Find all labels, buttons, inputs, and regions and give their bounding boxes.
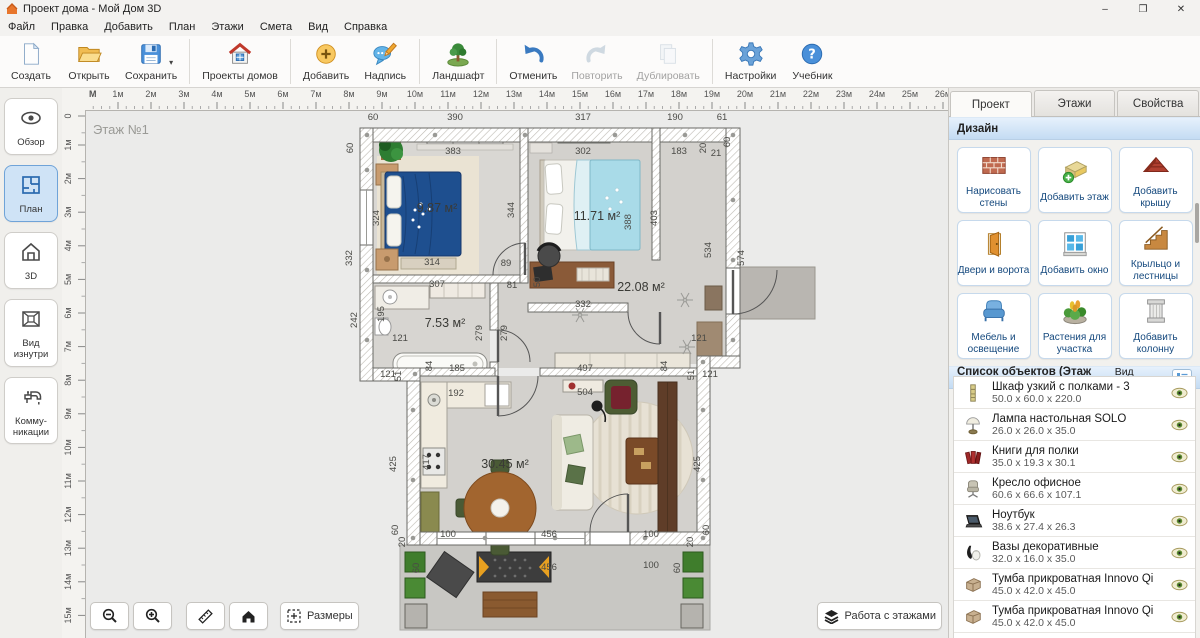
toolbar-button-settings[interactable]: Настройки	[718, 36, 784, 87]
h-ruler-tick-label: 17м	[638, 89, 654, 99]
v-ruler-tick-label: 11м	[63, 473, 73, 489]
toolbar-button-label: Создать	[11, 70, 51, 82]
dimension-label: 425	[692, 456, 703, 472]
object-list-item[interactable]: Книги для полки35.0 x 19.3 x 30.1	[954, 441, 1195, 473]
window-icon	[1060, 230, 1090, 263]
toolbar-button-label: Настройки	[725, 70, 777, 82]
dimension-label: 60	[345, 143, 356, 154]
dropdown-arrow-icon[interactable]: ▾	[169, 58, 173, 67]
dimension-label: 100	[440, 529, 456, 540]
visibility-eye-icon[interactable]	[1169, 419, 1189, 431]
dimension-label: 84	[659, 361, 670, 372]
add-plus-icon	[313, 39, 339, 69]
settings-gear-icon	[738, 39, 764, 69]
zoom-out-button[interactable]	[90, 602, 129, 630]
toolbar-separator	[419, 39, 420, 84]
h-ruler-tick-label: 24м	[869, 89, 885, 99]
toolbar-button-add[interactable]: Добавить	[296, 36, 356, 87]
design-button-add-roof[interactable]: Добавить крышу	[1119, 147, 1193, 213]
object-item-dimensions: 50.0 x 60.0 x 220.0	[992, 393, 1169, 405]
dimension-label: 417	[421, 454, 432, 470]
room-area-label: 30.45 м²	[481, 457, 529, 471]
object-list[interactable]: Шкаф узкий с полками - 350.0 x 60.0 x 22…	[953, 376, 1196, 638]
new-document-icon	[18, 39, 44, 69]
dimension-label: 100	[643, 560, 659, 571]
dimension-label: 302	[575, 146, 591, 157]
object-item-text: Вазы декоративные32.0 x 16.0 x 35.0	[992, 541, 1169, 565]
h-ruler-tick-label: 19м	[704, 89, 720, 99]
v-ruler-tick-label: 6м	[63, 307, 73, 318]
object-item-name: Книги для полки	[992, 445, 1169, 457]
v-ruler-tick-label: 0	[63, 113, 73, 118]
measure-button[interactable]	[186, 602, 225, 630]
design-button-label: Мебель и освещение	[958, 332, 1030, 354]
visibility-eye-icon[interactable]	[1169, 387, 1189, 399]
panel-scrollbar[interactable]	[1195, 203, 1199, 243]
help-circle-icon: ?	[799, 39, 825, 69]
h-ruler-tick-label: 2м	[145, 89, 156, 99]
dimensions-button-label: Размеры	[307, 610, 353, 622]
dimension-label: 317	[575, 112, 591, 123]
toolbar-button-save[interactable]: ▾Сохранить	[118, 36, 184, 87]
menu-item-0[interactable]: Файл	[0, 20, 43, 34]
redo-arrow-icon	[584, 39, 610, 69]
dimension-label: 324	[371, 210, 382, 226]
dimension-label: 332	[575, 299, 591, 310]
toolbar-separator	[712, 39, 713, 84]
tab-project[interactable]: Проект	[950, 91, 1032, 117]
object-list-item[interactable]: Картины на холсте	[954, 633, 1195, 638]
vases-icon	[960, 542, 986, 564]
sofa[interactable]	[552, 415, 593, 510]
label-bubble-icon	[371, 39, 399, 69]
object-item-text: Шкаф узкий с полками - 350.0 x 60.0 x 22…	[992, 381, 1169, 405]
toolbar-button-label: Открыть	[68, 70, 109, 82]
h-ruler-tick-label: 12м	[473, 89, 489, 99]
h-ruler-tick-label: 9м	[376, 89, 387, 99]
dimension-label: 314	[424, 257, 440, 268]
dimension-label: 574	[736, 250, 747, 266]
h-ruler-tick-label: 18м	[671, 89, 687, 99]
design-button-doors-gates[interactable]: Двери и ворота	[957, 220, 1031, 286]
dimension-label: 497	[577, 363, 593, 374]
object-item-text: Книги для полки35.0 x 19.3 x 30.1	[992, 445, 1169, 469]
design-button-label: Растения для участка	[1039, 332, 1111, 354]
panel-tabs: ПроектЭтажиСвойства	[949, 88, 1200, 117]
dimension-label: 307	[429, 279, 445, 290]
dimension-label: 534	[703, 242, 714, 258]
column-icon	[1141, 297, 1171, 330]
zoom-in-button[interactable]	[133, 602, 172, 630]
design-header-label: Дизайн	[957, 123, 998, 135]
terrace-table[interactable]	[483, 592, 537, 617]
work-with-floors-label: Работа с этажами	[845, 610, 937, 622]
entrance-porch	[740, 267, 815, 319]
dimension-label: 456	[541, 529, 557, 540]
toolbar-separator	[496, 39, 497, 84]
h-ruler-tick-label: 3м	[178, 89, 189, 99]
zoom-out-icon	[102, 608, 118, 624]
books-icon	[960, 446, 986, 468]
object-item-dimensions: 38.6 x 27.4 x 26.3	[992, 521, 1169, 533]
toolbar-separator	[290, 39, 291, 84]
menu-item-4[interactable]: Этажи	[203, 20, 251, 34]
eye-icon	[18, 106, 44, 135]
menu-item-1[interactable]: Правка	[43, 20, 96, 34]
room-area-label: 11.71 м²	[574, 209, 621, 223]
floor-plan[interactable]: Этаж №1603903171906138330218320216060332…	[85, 110, 948, 638]
dimensions-grid-icon	[286, 608, 302, 624]
visibility-eye-icon[interactable]	[1169, 515, 1189, 527]
duplicate-pages-icon	[655, 39, 681, 69]
dimension-label: 100	[643, 529, 659, 540]
dimension-label: 61	[717, 112, 728, 123]
toolbar-button-label: Отменить	[509, 70, 557, 82]
object-list-item[interactable]: Вазы декоративные32.0 x 16.0 x 35.0	[954, 537, 1195, 569]
object-item-text: Ноутбук38.6 x 27.4 x 26.3	[992, 509, 1169, 533]
save-floppy-icon: ▾	[138, 39, 164, 69]
visibility-eye-icon[interactable]	[1169, 483, 1189, 495]
dimension-label: 403	[649, 210, 660, 226]
v-ruler-tick-label: 15м	[63, 607, 73, 623]
object-item-dimensions: 35.0 x 19.3 x 30.1	[992, 457, 1169, 469]
dimension-label: 183	[671, 146, 687, 157]
dimension-label: 192	[448, 388, 464, 399]
h-ruler-tick-label: 14м	[539, 89, 555, 99]
dimension-label: 456	[541, 562, 557, 573]
dimension-label: 51	[686, 370, 697, 381]
toolbar-button-label: Ландшафт	[432, 70, 484, 82]
dimensions-button[interactable]: Размеры	[280, 602, 359, 630]
sidebar-item-3d[interactable]: 3D	[4, 232, 58, 289]
dimension-label: 84	[424, 361, 435, 372]
sidebar-item-label: Комму-никации	[7, 417, 55, 439]
faucet-icon	[18, 385, 44, 414]
h-ruler-tick-label: 23м	[836, 89, 852, 99]
toolbar-button-undo[interactable]: Отменить	[502, 36, 564, 87]
visibility-eye-icon[interactable]	[1169, 547, 1189, 559]
design-button-add-floor[interactable]: Добавить этаж	[1038, 147, 1112, 213]
object-item-dimensions: 60.6 x 66.6 x 107.1	[992, 489, 1169, 501]
toolbar-button-label: Повторить	[571, 70, 622, 82]
nightstand-icon	[960, 574, 986, 596]
visibility-eye-icon[interactable]	[1169, 611, 1189, 623]
main-toolbar: СоздатьОткрыть▾СохранитьПроекты домовДоб…	[0, 36, 1200, 88]
h-ruler-tick-label: 13м	[506, 89, 522, 99]
menu-item-2[interactable]: Добавить	[96, 20, 161, 34]
design-button-label: Добавить крышу	[1120, 186, 1192, 208]
v-ruler-tick-label: 14м	[63, 574, 73, 590]
dimension-label: 60	[368, 112, 379, 123]
shelf-icon	[960, 382, 986, 404]
h-ruler-tick-label: 20м	[737, 89, 753, 99]
floor-name-label: Этаж №1	[93, 122, 149, 137]
design-button-porch-stairs[interactable]: Крыльцо и лестницы	[1119, 220, 1193, 286]
ruler-unit-label: М	[89, 89, 97, 99]
dimension-label: 60	[672, 563, 683, 574]
design-button-label: Добавить этаж	[1040, 192, 1109, 203]
h-ruler-tick-label: 26м	[935, 89, 948, 99]
design-button-add-column[interactable]: Добавить колонну	[1119, 293, 1193, 359]
dimension-label: 185	[449, 363, 465, 374]
dimension-label: 121	[392, 333, 408, 344]
h-ruler-tick-label: 10м	[407, 89, 423, 99]
design-header: Дизайн	[949, 117, 1200, 140]
armchair-icon	[979, 297, 1009, 330]
menu-bar: ФайлПравкаДобавитьПланЭтажиСметаВидСправ…	[0, 18, 1200, 36]
design-button-add-window[interactable]: Добавить окно	[1038, 220, 1112, 286]
undo-arrow-icon	[520, 39, 546, 69]
ruler-icon	[197, 608, 214, 625]
v-ruler-tick-label: 1м	[63, 139, 73, 150]
dimension-label: 51	[393, 371, 404, 382]
object-item-dimensions: 32.0 x 16.0 x 35.0	[992, 553, 1169, 565]
toolbar-button-duplicate: Дублировать	[630, 36, 707, 87]
sidebar-item-communications[interactable]: Комму-никации	[4, 377, 58, 445]
object-item-name: Вазы декоративные	[992, 541, 1169, 553]
toolbar-separator	[189, 39, 190, 84]
window-title: Проект дома - Мой Дом 3D	[23, 3, 161, 15]
toolbar-button-label: Сохранить	[125, 70, 177, 82]
dimension-label: 20	[397, 537, 408, 548]
dimension-label: 504	[577, 387, 593, 398]
toolbar-button-landscape[interactable]: Ландшафт	[425, 36, 491, 87]
plants-icon	[1060, 297, 1090, 330]
dimension-label: 20	[685, 537, 696, 548]
home-icon	[241, 609, 256, 624]
home-button[interactable]	[229, 602, 268, 630]
house-3d-icon	[18, 240, 44, 269]
design-button-furniture-light[interactable]: Мебель и освещение	[957, 293, 1031, 359]
house-projects-icon	[226, 39, 254, 69]
h-ruler-tick-label: 22м	[803, 89, 819, 99]
lamp-icon	[960, 414, 986, 436]
minimize-button[interactable]: –	[1086, 4, 1124, 15]
dimension-label: 383	[445, 146, 461, 157]
dimension-label: 89	[501, 258, 512, 269]
menu-item-3[interactable]: План	[161, 20, 204, 34]
floor-plan-icon	[18, 173, 44, 202]
object-item-dimensions: 45.0 x 42.0 x 45.0	[992, 617, 1169, 629]
dimension-label: 388	[623, 214, 634, 230]
toolbar-button-tutorial[interactable]: ?Учебник	[783, 36, 841, 87]
dimension-label: 60	[701, 525, 712, 536]
app-window: Проект дома - Мой Дом 3D – ❐ ✕ ФайлПравк…	[0, 0, 1200, 638]
v-ruler-tick-label: 4м	[63, 240, 73, 251]
svg-text:?: ?	[809, 48, 817, 63]
h-ruler-tick-label: 1м	[112, 89, 123, 99]
dimension-label: 81	[507, 280, 518, 291]
sidebar-item-label: Обзор	[17, 138, 44, 149]
design-button-label: Двери и ворота	[958, 265, 1030, 276]
visibility-eye-icon[interactable]	[1169, 451, 1189, 463]
toolbar-button-label: Добавить	[303, 70, 349, 82]
office-chair-icon	[960, 478, 986, 500]
object-item-text: Тумба прикроватная Innovo Qi45.0 x 42.0 …	[992, 573, 1169, 597]
dimension-label: 20	[698, 143, 709, 154]
h-ruler-tick-label: 25м	[902, 89, 918, 99]
object-item-dimensions: 45.0 x 42.0 x 45.0	[992, 585, 1169, 597]
toolbar-button-label: Дублировать	[637, 70, 700, 82]
v-ruler-tick-label: 13м	[63, 540, 73, 556]
dimension-label: 50	[532, 277, 543, 288]
ruler-corner	[62, 88, 85, 110]
object-item-name: Ноутбук	[992, 509, 1169, 521]
toolbar-button-house-projects[interactable]: Проекты домов	[195, 36, 285, 87]
interior-view-icon	[18, 307, 44, 336]
dimension-label: 21	[711, 148, 722, 159]
menu-item-6[interactable]: Вид	[300, 20, 336, 34]
h-ruler-tick-label: 21м	[770, 89, 786, 99]
h-ruler-tick-label: 8м	[343, 89, 354, 99]
nightstand-icon	[960, 606, 986, 628]
dimension-label: 60	[390, 525, 401, 536]
v-ruler-tick-label: 10м	[63, 439, 73, 455]
object-item-text: Кресло офисное60.6 x 66.6 x 107.1	[992, 477, 1169, 501]
v-ruler-tick-label: 3м	[63, 207, 73, 218]
menu-item-5[interactable]: Смета	[252, 20, 300, 34]
dimension-label: 332	[344, 250, 355, 266]
object-list-item[interactable]: Кресло офисное60.6 x 66.6 x 107.1	[954, 473, 1195, 505]
coffee-table[interactable]	[626, 438, 659, 484]
v-ruler-tick-label: 7м	[63, 341, 73, 352]
dimension-label: 60	[722, 137, 733, 148]
object-list-item[interactable]: Лампа настольная SOLO26.0 x 26.0 x 35.0	[954, 409, 1195, 441]
object-item-name: Тумба прикроватная Innovo Qi	[992, 573, 1169, 585]
menu-item-7[interactable]: Справка	[336, 20, 395, 34]
dimension-label: 195	[376, 306, 387, 322]
dimension-label: 60	[411, 563, 422, 574]
dimension-label: 121	[691, 333, 707, 344]
terrace-sofa[interactable]	[477, 552, 551, 582]
object-list-item[interactable]: Тумба прикроватная Innovo Qi45.0 x 42.0 …	[954, 601, 1195, 633]
toolbar-button-open[interactable]: Открыть	[60, 36, 118, 87]
toolbar-button-label[interactable]: Надпись	[356, 36, 414, 87]
vertical-ruler: 01м2м3м4м5м6м7м8м9м10м11м12м13м14м15м	[62, 110, 86, 638]
object-item-name: Лампа настольная SOLO	[992, 413, 1169, 425]
dimension-label: 190	[667, 112, 683, 123]
object-item-dimensions: 26.0 x 26.0 x 35.0	[992, 425, 1169, 437]
design-button-label: Нарисовать стены	[958, 186, 1030, 208]
maximize-button[interactable]: ❐	[1124, 4, 1162, 15]
armchair[interactable]	[605, 380, 637, 414]
object-item-name: Кресло офисное	[992, 477, 1169, 489]
dimension-label: 425	[388, 456, 399, 472]
room-area-label: 9.87 м²	[417, 201, 458, 215]
object-list-item[interactable]: Ноутбук38.6 x 27.4 x 26.3	[954, 505, 1195, 537]
sidebar-item-interior[interactable]: Вид изнутри	[4, 299, 58, 367]
toolbar-button-new[interactable]: Создать	[2, 36, 60, 87]
view-sidebar: ОбзорПлан3DВид изнутриКомму-никации	[0, 88, 63, 638]
plan-canvas-area[interactable]: М1м2м3м4м5м6м7м8м9м10м11м12м13м14м15м16м…	[62, 88, 948, 638]
toolbar-button-redo: Повторить	[564, 36, 629, 87]
object-list-item[interactable]: Тумба прикроватная Innovo Qi45.0 x 42.0 …	[954, 569, 1195, 601]
design-button-draw-walls[interactable]: Нарисовать стены	[957, 147, 1031, 213]
horizontal-ruler: М1м2м3м4м5м6м7м8м9м10м11м12м13м14м15м16м…	[85, 88, 948, 111]
tab-properties[interactable]: Свойства	[1117, 90, 1199, 116]
object-item-name: Шкаф узкий с полками - 3	[992, 381, 1169, 393]
v-ruler-tick-label: 12м	[63, 506, 73, 522]
roof-icon	[1141, 151, 1171, 184]
canvas-controls: Размеры	[90, 602, 359, 630]
object-item-text: Тумба прикроватная Innovo Qi45.0 x 42.0 …	[992, 605, 1169, 629]
sidebar-item-overview[interactable]: Обзор	[4, 98, 58, 155]
sidebar-item-label: План	[20, 205, 43, 216]
v-ruler-tick-label: 9м	[63, 408, 73, 419]
room-area-label: 7.53 м²	[425, 316, 466, 330]
right-panel: ПроектЭтажиСвойства Дизайн Нарисовать ст…	[948, 88, 1200, 638]
add-floor-icon	[1060, 157, 1090, 190]
dimension-label: 279	[499, 325, 510, 341]
design-button-label: Добавить колонну	[1120, 332, 1192, 354]
close-button[interactable]: ✕	[1162, 4, 1200, 15]
brick-wall-icon	[979, 151, 1009, 184]
v-ruler-tick-label: 5м	[63, 274, 73, 285]
dimension-label: 279	[474, 325, 485, 341]
workspace: ОбзорПлан3DВид изнутриКомму-никации М1м2…	[0, 88, 1200, 638]
design-button-plants[interactable]: Растения для участка	[1038, 293, 1112, 359]
toolbar-button-label: Надпись	[364, 70, 406, 82]
h-ruler-tick-label: 6м	[277, 89, 288, 99]
object-list-item[interactable]: Шкаф узкий с полками - 350.0 x 60.0 x 22…	[954, 377, 1195, 409]
laptop-icon	[960, 510, 986, 532]
object-item-name: Тумба прикроватная Innovo Qi	[992, 605, 1169, 617]
dimension-label: 121	[702, 369, 718, 380]
toolbar-button-label: Проекты домов	[202, 70, 278, 82]
tab-floors[interactable]: Этажи	[1034, 90, 1116, 116]
h-ruler-tick-label: 7м	[310, 89, 321, 99]
zoom-in-icon	[145, 608, 161, 624]
open-folder-icon	[76, 39, 102, 69]
v-ruler-tick-label: 8м	[63, 375, 73, 386]
room-area-label: 22.08 м²	[617, 280, 665, 294]
office-chair[interactable]	[538, 244, 560, 267]
sidebar-item-label: 3D	[25, 272, 37, 283]
stairs-icon	[1141, 224, 1171, 257]
design-button-label: Крыльцо и лестницы	[1120, 259, 1192, 281]
toolbar-button-label: Учебник	[792, 70, 832, 82]
title-bar: Проект дома - Мой Дом 3D – ❐ ✕	[0, 0, 1200, 18]
dimension-label: 344	[506, 202, 517, 218]
sidebar-item-label: Вид изнутри	[7, 339, 55, 361]
landscape-tree-icon	[445, 39, 471, 69]
design-grid: Нарисовать стеныДобавить этажДобавить кр…	[949, 140, 1200, 366]
dimension-label: 242	[349, 312, 360, 328]
h-ruler-tick-label: 15м	[572, 89, 588, 99]
dimension-label: 390	[447, 112, 463, 123]
h-ruler-tick-label: 4м	[211, 89, 222, 99]
v-ruler-tick-label: 2м	[63, 173, 73, 184]
visibility-eye-icon[interactable]	[1169, 579, 1189, 591]
object-item-text: Лампа настольная SOLO26.0 x 26.0 x 35.0	[992, 413, 1169, 437]
work-with-floors-button[interactable]: Работа с этажами	[817, 602, 943, 630]
door-icon	[979, 230, 1009, 263]
h-ruler-tick-label: 16м	[605, 89, 621, 99]
app-logo-icon	[6, 3, 18, 15]
terrace[interactable]	[400, 545, 710, 630]
design-button-label: Добавить окно	[1041, 265, 1109, 276]
h-ruler-tick-label: 11м	[440, 89, 456, 99]
sidebar-item-plan[interactable]: План	[4, 165, 58, 222]
h-ruler-tick-label: 5м	[244, 89, 255, 99]
layers-icon	[823, 609, 840, 624]
